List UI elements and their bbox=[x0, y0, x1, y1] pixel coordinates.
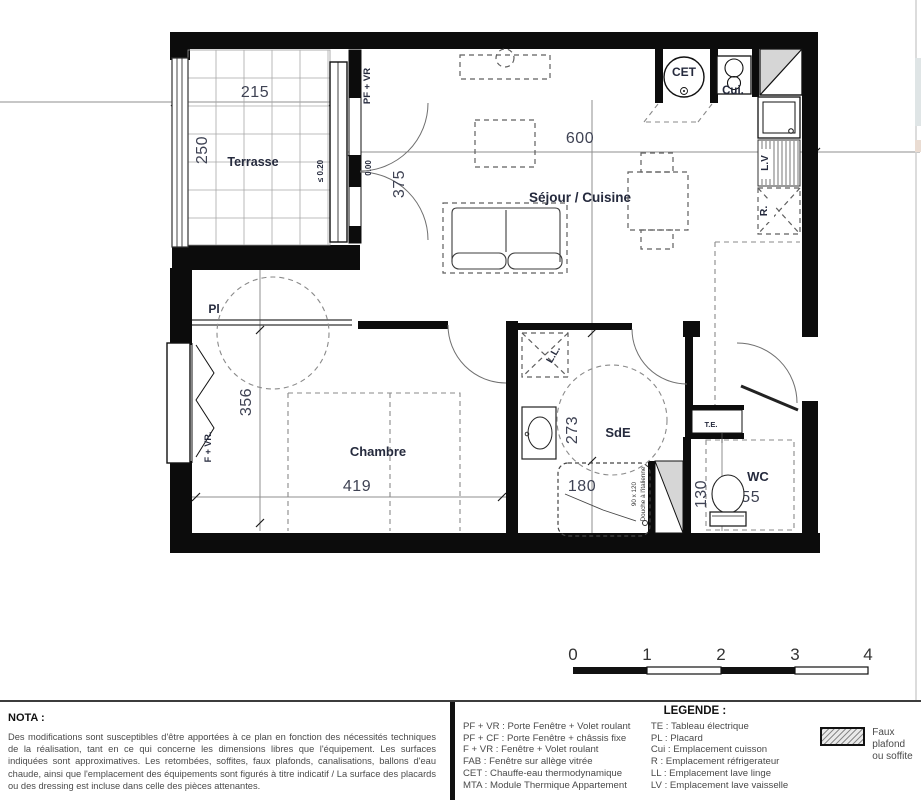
legend-item: FAB : Fenêtre sur allège vitrée bbox=[463, 756, 651, 768]
faux-plafond-swatch-icon bbox=[820, 727, 866, 746]
coffee-table-icon bbox=[475, 120, 535, 167]
soffite-column-icon bbox=[655, 461, 683, 533]
entry-faux-plafond-outline bbox=[715, 242, 800, 405]
floor-plan-page: 215 250 Terrasse ≤ 0.20 PF + VR 0.00 375… bbox=[0, 0, 921, 800]
legend-title: LEGENDE : bbox=[463, 705, 921, 717]
entry-door-leaf-icon bbox=[741, 386, 798, 410]
legend-item: CET : Chauffe-eau thermodynamique bbox=[463, 768, 651, 780]
placard-label: Pl bbox=[208, 302, 219, 316]
legend-item: R : Emplacement réfrigerateur bbox=[651, 756, 820, 768]
console-icon bbox=[460, 55, 550, 79]
ll-label: L.L. bbox=[545, 344, 564, 365]
kitchen-sink-icon bbox=[758, 97, 800, 138]
legend-item: MTA : Module Thermique Appartement bbox=[463, 780, 651, 792]
scale-tick-3: 3 bbox=[790, 645, 799, 664]
washing-machine-icon bbox=[522, 333, 568, 377]
room-label-wc: WC bbox=[747, 469, 769, 484]
room-label-sde: SdE bbox=[605, 425, 631, 440]
room-label-terrasse: Terrasse bbox=[227, 155, 278, 169]
lv-label: L.V bbox=[760, 155, 771, 171]
legend-item: Cui : Emplacement cuisson bbox=[651, 744, 820, 756]
dim-sejour-width: 600 bbox=[566, 130, 594, 147]
bottom-panel: NOTA : Des modifications sont susceptibl… bbox=[0, 700, 921, 800]
legend-item: PF + VR : Porte Fenêtre + Volet roulant bbox=[463, 721, 651, 733]
shower-size-label: 90 x 120 bbox=[631, 481, 638, 506]
scale-bar: 0 1 2 3 4 bbox=[568, 645, 872, 674]
legend-section: LEGENDE : PF + VR : Porte Fenêtre + Vole… bbox=[455, 702, 921, 800]
nota-title: NOTA : bbox=[8, 712, 436, 724]
dim-terrasse-width: 215 bbox=[241, 84, 269, 101]
legend-column-emplacements: TE : Tableau électrique PL : Placard Cui… bbox=[651, 721, 820, 791]
dim-terrasse-depth: 250 bbox=[194, 136, 211, 164]
threshold-label: ≤ 0.20 bbox=[316, 159, 325, 182]
turning-circle-chambre bbox=[217, 277, 329, 389]
dim-wc-depth: 130 bbox=[693, 480, 710, 508]
entry-door-swing-icon bbox=[737, 343, 797, 403]
cet-label: CET bbox=[672, 65, 697, 79]
faux-plafond-label-line2: ou soffite bbox=[872, 751, 921, 763]
page-edge bbox=[915, 0, 921, 700]
faux-plafond-legend: Faux plafond ou soffite bbox=[820, 721, 921, 791]
faux-plafond-label-line1: Faux plafond bbox=[872, 727, 921, 751]
sofa-icon bbox=[443, 203, 567, 273]
washbasin-icon bbox=[522, 407, 556, 459]
cui-label: Cui. bbox=[722, 85, 744, 97]
floor-plan-drawing: 215 250 Terrasse ≤ 0.20 PF + VR 0.00 375… bbox=[0, 0, 921, 700]
soffite-corner-icon bbox=[760, 49, 802, 95]
chambre-room: Pl Chambre 419 356 F + VR. bbox=[167, 277, 506, 531]
chambre-door-swing-icon bbox=[448, 325, 506, 383]
nota-section: NOTA : Des modifications sont susceptibl… bbox=[0, 702, 450, 800]
dim-sde-depth: 273 bbox=[564, 416, 581, 444]
sejour-room: 600 Séjour / Cuisine bbox=[443, 49, 800, 405]
level-label: 0.00 bbox=[364, 160, 373, 176]
terrasse-door: PF + VR 0.00 375 bbox=[330, 50, 428, 243]
terrasse-railing-icon bbox=[172, 58, 188, 247]
scale-tick-1: 1 bbox=[642, 645, 651, 664]
toilet-icon bbox=[710, 475, 746, 526]
legend-item: TE : Tableau électrique bbox=[651, 721, 820, 733]
sde-door-swing-icon bbox=[632, 329, 687, 384]
room-label-chambre: Chambre bbox=[350, 444, 406, 459]
r-label: R. bbox=[758, 206, 770, 217]
terrasse-room: 215 250 Terrasse ≤ 0.20 bbox=[172, 50, 330, 247]
scale-tick-2: 2 bbox=[716, 645, 725, 664]
dim-chambre-width: 419 bbox=[343, 478, 371, 495]
kitchen-fixtures: CET Cui. L.V bbox=[644, 49, 802, 234]
dim-sejour-depth: 375 bbox=[391, 170, 408, 198]
bed-icon bbox=[288, 393, 460, 531]
scale-tick-0: 0 bbox=[568, 645, 577, 664]
legend-item: PF + CF : Porte Fenêtre + châssis fixe bbox=[463, 733, 651, 745]
pf-vr-label: PF + VR bbox=[362, 68, 373, 104]
legend-item: F + VR : Fenêtre + Volet roulant bbox=[463, 744, 651, 756]
legend-item: LL : Emplacement lave linge bbox=[651, 768, 820, 780]
dim-chambre-depth: 356 bbox=[238, 388, 255, 416]
dining-table-icon bbox=[628, 153, 688, 249]
shower-type-label: Douche à l'italienne bbox=[640, 466, 647, 521]
scale-tick-4: 4 bbox=[863, 645, 872, 664]
dim-sde-width: 180 bbox=[568, 478, 596, 495]
legend-item: PL : Placard bbox=[651, 733, 820, 745]
legend-item: LV : Emplacement lave vaisselle bbox=[651, 780, 820, 792]
legend-column-abbreviations: PF + VR : Porte Fenêtre + Volet roulant … bbox=[463, 721, 651, 791]
te-label: T.E. bbox=[705, 420, 718, 429]
f-vr-label: F + VR. bbox=[203, 432, 213, 463]
nota-body: Des modifications sont susceptibles d'êt… bbox=[8, 731, 436, 792]
